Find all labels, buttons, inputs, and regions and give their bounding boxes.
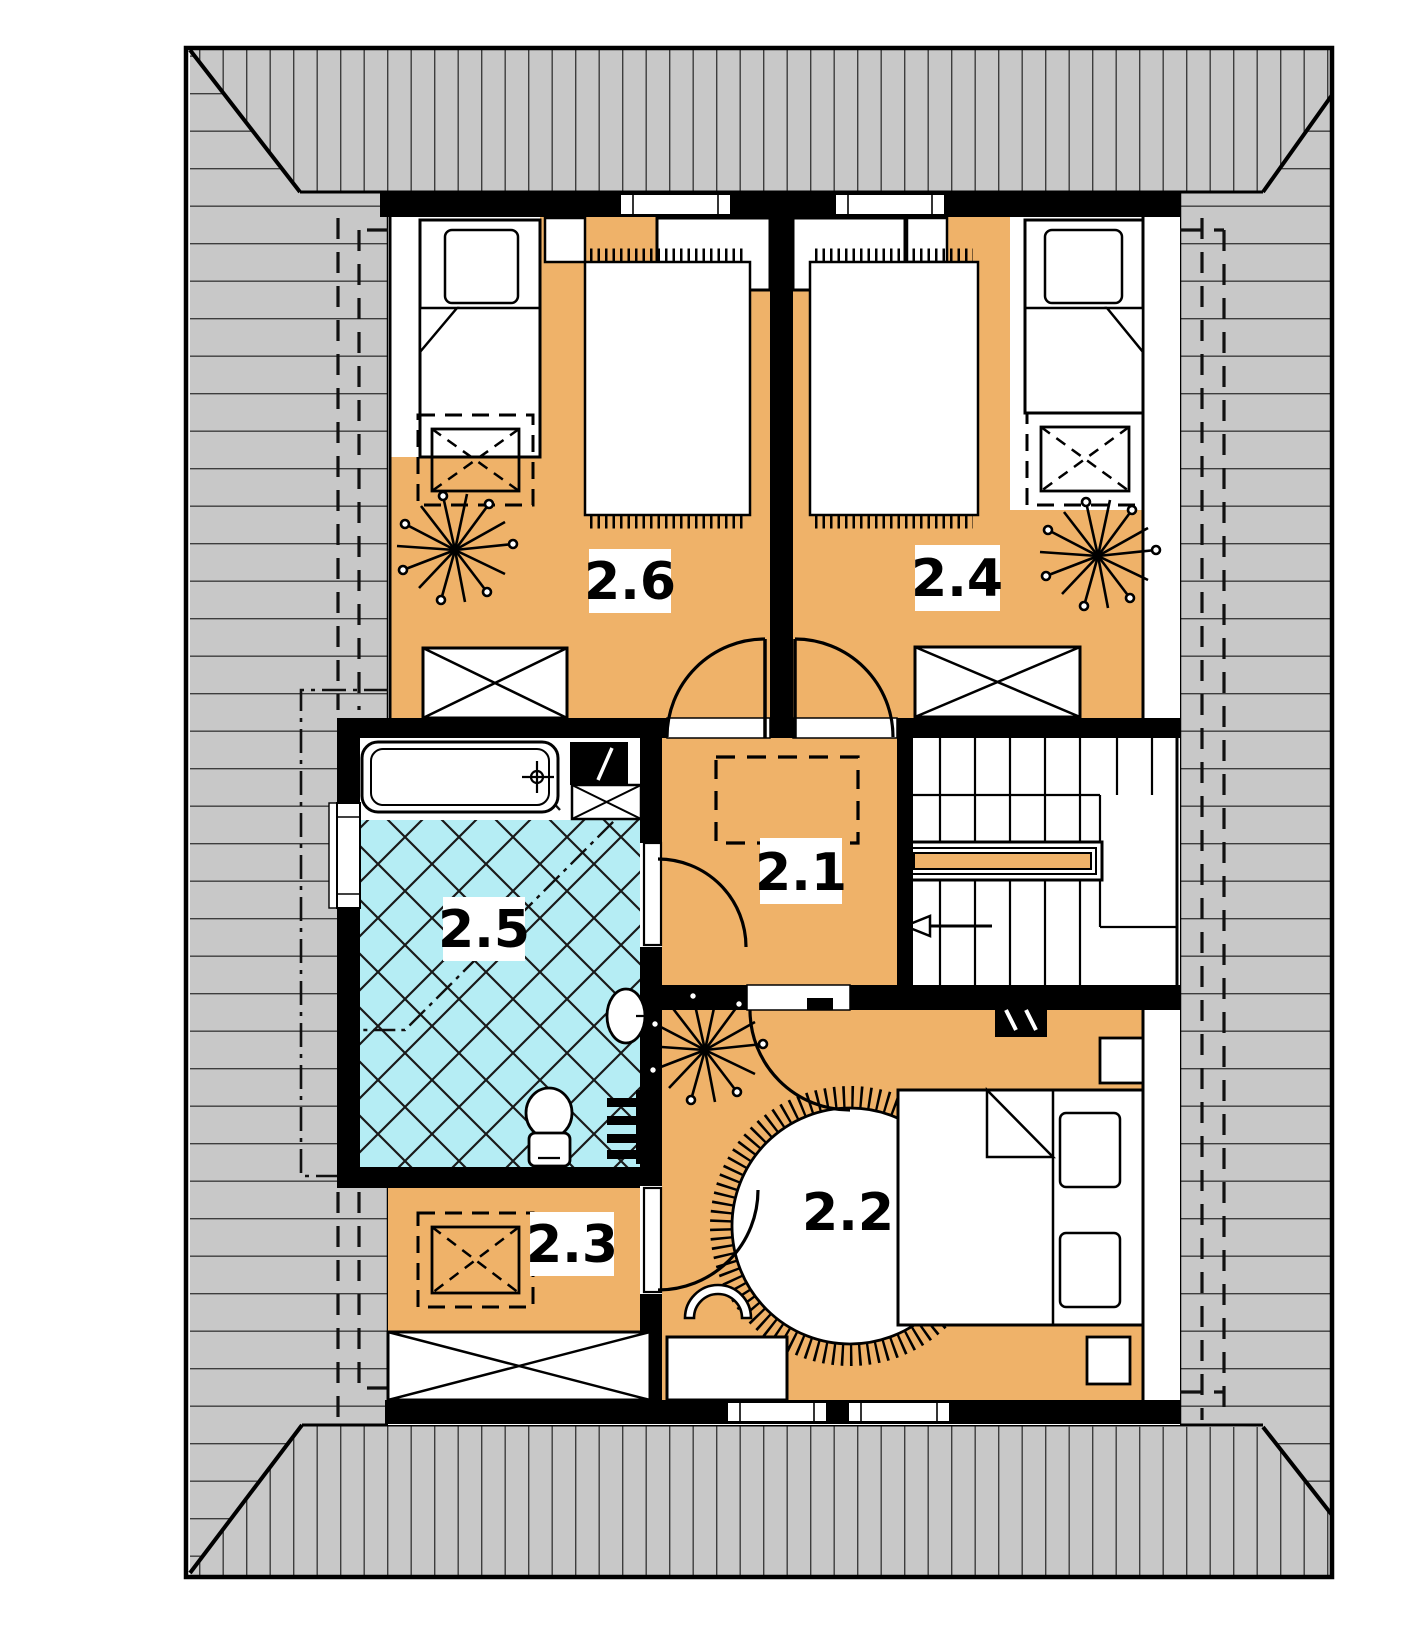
floor-plan-drawing: 2.1 2.2 2.3 2.4 2.5 2.6 (0, 0, 1423, 1625)
bathtub-icon (362, 742, 558, 812)
washing-machine-icon (572, 785, 641, 819)
room-label-2-5: 2.5 (438, 900, 530, 960)
bed-icon (898, 1090, 1143, 1325)
room-label-2-1: 2.1 (755, 843, 847, 903)
light-switch-icon (995, 1003, 1047, 1037)
shelf-icon (545, 218, 585, 262)
wardrobe-icon (915, 647, 1080, 717)
carpet-icon (810, 255, 978, 522)
carpet-icon (585, 255, 750, 522)
window-icon (329, 803, 360, 908)
room-label-2-6: 2.6 (584, 552, 676, 612)
pillow-icon (1060, 1233, 1120, 1307)
floor-plan-page: 2.1 2.2 2.3 2.4 2.5 2.6 (0, 0, 1423, 1625)
desk-icon (667, 1337, 787, 1400)
window-icon (835, 194, 945, 215)
window-icon (727, 1402, 827, 1422)
nightstand-icon (1100, 1038, 1143, 1083)
wardrobe-icon (388, 1332, 650, 1400)
nightstand-icon (1087, 1337, 1130, 1384)
window-icon (848, 1402, 950, 1422)
window-icon (620, 194, 731, 215)
room-label-2-4: 2.4 (911, 549, 1003, 609)
toilet-icon (526, 1088, 572, 1166)
pillow-icon (1045, 230, 1122, 303)
wardrobe-icon (423, 648, 567, 718)
room-label-2-3: 2.3 (526, 1215, 618, 1275)
handrail-icon (903, 842, 1102, 880)
bed-icon (420, 220, 540, 457)
shower-cabinet-icon (570, 742, 628, 785)
pillow-icon (445, 230, 518, 303)
room-label-2-2: 2.2 (802, 1183, 894, 1243)
bed-icon (1025, 220, 1143, 413)
pillow-icon (1060, 1113, 1120, 1187)
